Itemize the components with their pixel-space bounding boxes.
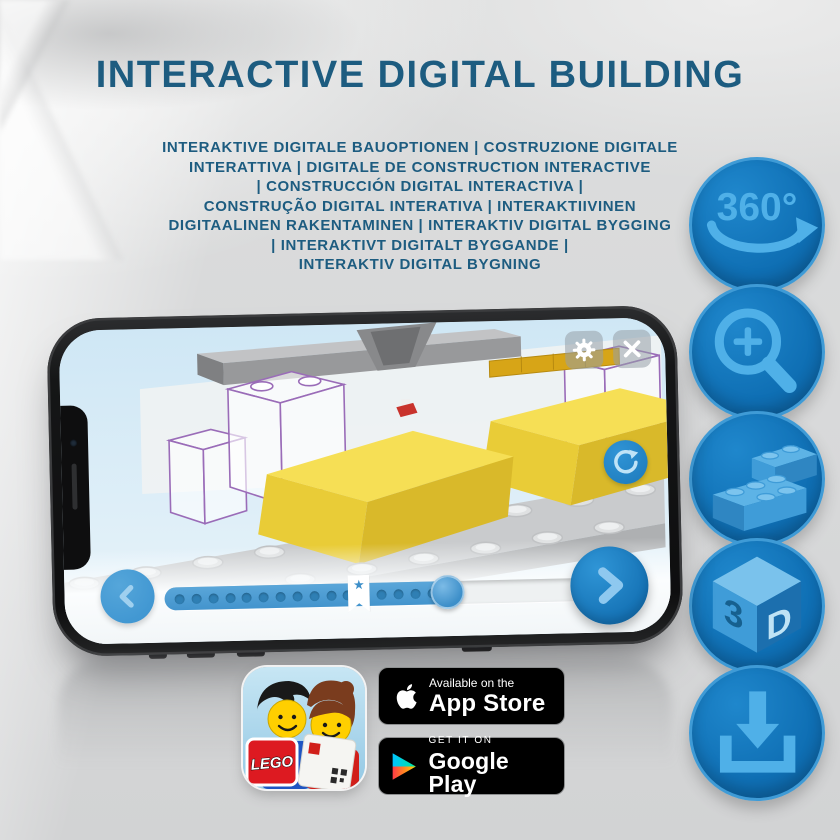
app-store-name: App Store (429, 692, 545, 716)
chevron-left-icon (111, 580, 144, 613)
subtitle-line: INTERAKTIVE DIGITALE BAUOPTIONEN | COSTR… (120, 138, 720, 158)
subtitle-line: | CONSTRUCCIÓN DIGITAL INTERACTIVA | (120, 177, 720, 197)
app-store-tagline: Available on the (429, 677, 545, 689)
slider-dot (393, 589, 403, 599)
slider-dot (242, 592, 252, 602)
slider-dot (259, 592, 269, 602)
multilingual-subtitle: INTERAKTIVE DIGITALE BAUOPTIONEN | COSTR… (120, 138, 720, 275)
app-store-badge[interactable]: Available on the App Store (378, 667, 565, 725)
360-label: 360° (717, 186, 798, 229)
cube-3-label: 3 (724, 590, 744, 638)
subtitle-line: INTERAKTIV DIGITAL BYGNING (120, 255, 720, 275)
subtitle-line: CONSTRUÇÃO DIGITAL INTERATIVA | INTERAKT… (120, 197, 720, 217)
lego-brick-icon (692, 414, 822, 544)
phone-body: ★ (46, 305, 684, 657)
google-play-badge[interactable]: GET IT ON Google Play (378, 737, 565, 795)
close-icon (618, 335, 647, 364)
subtitle-line: INTERATTIVA | DIGITALE DE CONSTRUCTION I… (120, 158, 720, 178)
subtitle-line: DIGITAALINEN RAKENTAMINEN | INTERAKTIV D… (120, 216, 720, 236)
apple-icon (391, 680, 418, 713)
zoom-in-icon (692, 287, 822, 417)
slider-dot (191, 593, 201, 603)
slider-dot (292, 591, 302, 601)
star-icon: ★ (353, 577, 365, 592)
feature-zoom-button[interactable] (689, 284, 825, 420)
slider-dot (326, 590, 336, 600)
google-play-name: Google Play (429, 750, 553, 796)
subtitle-line: | INTERAKTIVT DIGITALT BYGGANDE | (120, 236, 720, 256)
earpiece-speaker (72, 464, 78, 510)
close-button[interactable] (613, 329, 652, 368)
feature-download-button[interactable] (689, 665, 825, 801)
slider-dot (309, 591, 319, 601)
slider-dot (175, 594, 185, 604)
gear-icon (570, 336, 599, 365)
front-camera (70, 440, 77, 447)
feature-3d-button[interactable]: 3 D (689, 538, 825, 674)
slider-dot (225, 592, 235, 602)
360-rotation-icon: 360° (692, 160, 822, 290)
feature-icon-column: 360° (689, 157, 825, 792)
phone-mockup: ★ (46, 305, 684, 657)
qr-card (298, 734, 357, 789)
page-title: INTERACTIVE DIGITAL BUILDING (0, 54, 840, 97)
slider-dot (377, 589, 387, 599)
slider-dot (276, 591, 286, 601)
slider-dot (410, 588, 420, 598)
feature-360-rotation-button[interactable]: 360° (689, 157, 825, 293)
phone-notch (60, 405, 91, 570)
phone-reflection (58, 658, 672, 808)
rotate-icon (610, 447, 641, 478)
download-icon (692, 668, 822, 798)
app-icon-art: LEGO (243, 667, 365, 789)
lego-logo: LEGO (247, 739, 297, 785)
google-play-icon (391, 750, 418, 783)
marketing-page: INTERACTIVE DIGITAL BUILDING INTERAKTIVE… (0, 0, 840, 840)
3d-cube-icon: 3 D (692, 541, 822, 671)
feature-brick-button[interactable] (689, 411, 825, 547)
slider-dot (208, 593, 218, 603)
chevron-right-icon (587, 563, 632, 608)
lego-app-icon[interactable]: LEGO (243, 667, 365, 789)
app-screen: ★ (59, 317, 672, 645)
google-play-tagline: GET IT ON (429, 736, 553, 746)
settings-button[interactable] (565, 331, 604, 370)
